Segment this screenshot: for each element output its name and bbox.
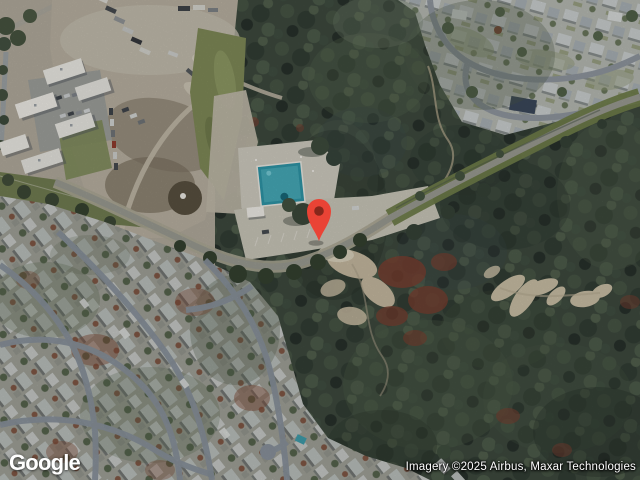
map-pin[interactable] xyxy=(305,197,333,243)
pin-body xyxy=(307,199,331,241)
map-viewport[interactable]: Google Imagery ©2025 Airbus, Maxar Techn… xyxy=(0,0,640,480)
pin-hole xyxy=(314,206,324,216)
google-logo[interactable]: Google xyxy=(9,450,80,476)
map-attribution: Imagery ©2025 Airbus, Maxar Technologies xyxy=(406,461,636,473)
